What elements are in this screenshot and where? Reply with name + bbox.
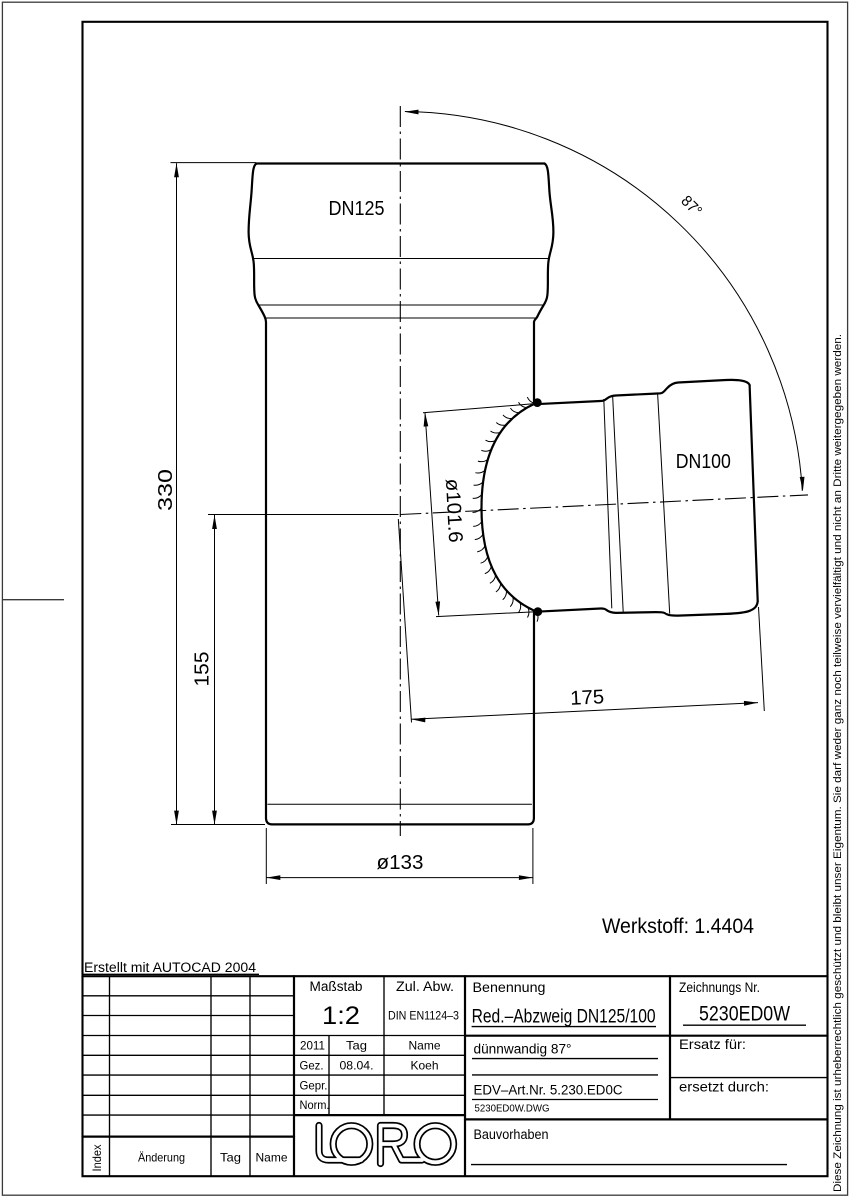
svg-text:330: 330 <box>155 469 177 511</box>
svg-text:Zul. Abw.: Zul. Abw. <box>396 979 454 994</box>
svg-text:ø101.6: ø101.6 <box>441 478 466 543</box>
svg-text:Gepr.: Gepr. <box>300 1078 328 1092</box>
svg-text:5230ED0W.DWG: 5230ED0W.DWG <box>475 1103 550 1115</box>
svg-text:Name: Name <box>256 1151 288 1165</box>
svg-text:Norm.: Norm. <box>300 1098 330 1112</box>
svg-text:DIN EN1124–3: DIN EN1124–3 <box>388 1011 459 1023</box>
svg-text:5230ED0W: 5230ED0W <box>699 1003 790 1026</box>
svg-text:Bauvorhaben: Bauvorhaben <box>474 1127 549 1142</box>
svg-text:Zeichnungs Nr.: Zeichnungs Nr. <box>679 980 760 995</box>
svg-text:Diese Zeichnung ist urheberrec: Diese Zeichnung ist urheberrechtlich ges… <box>832 334 844 1192</box>
svg-text:Koeh: Koeh <box>411 1058 439 1072</box>
svg-text:Änderung: Änderung <box>138 1151 185 1165</box>
svg-text:Werkstoff: 1.4404: Werkstoff: 1.4404 <box>602 915 754 938</box>
svg-text:Red.–Abzweig DN125/100: Red.–Abzweig DN125/100 <box>472 1006 656 1028</box>
svg-text:EDV–Art.Nr. 5.230.ED0C: EDV–Art.Nr. 5.230.ED0C <box>474 1083 623 1098</box>
svg-text:ersetzt durch:: ersetzt durch: <box>679 1080 769 1095</box>
svg-text:DN100: DN100 <box>676 451 731 473</box>
svg-text:Erstellt mit AUTOCAD 2004: Erstellt mit AUTOCAD 2004 <box>84 960 257 975</box>
svg-text:Ersatz für:: Ersatz für: <box>679 1037 746 1052</box>
svg-text:Tag: Tag <box>346 1039 367 1053</box>
svg-text:08.04.: 08.04. <box>340 1058 374 1072</box>
svg-text:Tag: Tag <box>220 1151 241 1165</box>
svg-text:Index: Index <box>90 1145 104 1172</box>
svg-text:dünnwandig 87°: dünnwandig 87° <box>474 1041 572 1056</box>
svg-text:ø133: ø133 <box>377 852 424 874</box>
svg-text:175: 175 <box>570 686 605 710</box>
svg-text:Maßstab: Maßstab <box>310 979 363 994</box>
svg-text:Benennung: Benennung <box>473 980 546 995</box>
svg-text:155: 155 <box>192 652 214 687</box>
svg-text:1:2: 1:2 <box>322 1002 360 1030</box>
svg-text:Gez.: Gez. <box>300 1058 324 1072</box>
svg-text:DN125: DN125 <box>329 198 385 220</box>
svg-text:Name: Name <box>409 1039 441 1053</box>
svg-text:2011: 2011 <box>300 1039 325 1053</box>
